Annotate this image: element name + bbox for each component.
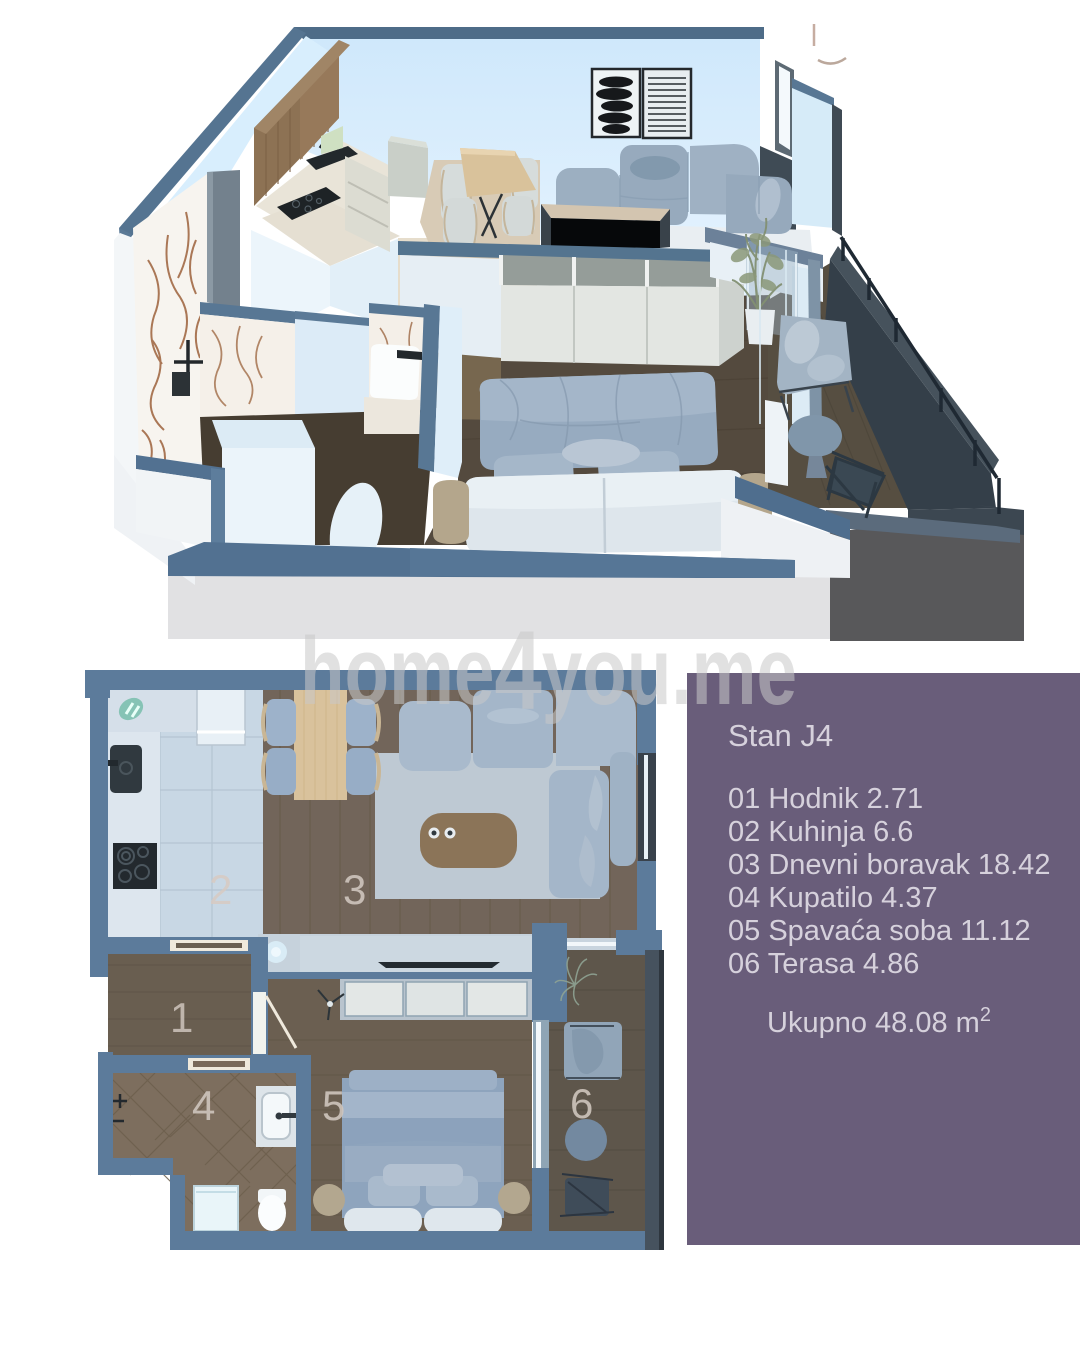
- svg-text:01 Hodnik 2.71: 01 Hodnik 2.71: [728, 783, 923, 815]
- svg-text:5: 5: [322, 1082, 345, 1129]
- svg-text:3: 3: [343, 866, 366, 913]
- svg-text:06 Terasa 4.86: 06 Terasa 4.86: [728, 948, 919, 980]
- svg-text:05 Spavaća soba 11.12: 05 Spavaća soba 11.12: [728, 915, 1031, 947]
- svg-text:home4you.me: home4you.me: [300, 608, 797, 733]
- svg-text:02 Kuhinja 6.6: 02 Kuhinja 6.6: [728, 816, 913, 848]
- svg-text:04 Kupatilo 4.37: 04 Kupatilo 4.37: [728, 882, 938, 914]
- svg-text:4: 4: [192, 1082, 215, 1129]
- svg-text:1: 1: [170, 994, 193, 1041]
- svg-text:2: 2: [209, 866, 232, 913]
- svg-text:03 Dnevni boravak 18.42: 03 Dnevni boravak 18.42: [728, 849, 1050, 881]
- svg-text:Ukupno 48.08 m2: Ukupno 48.08 m2: [767, 1004, 991, 1039]
